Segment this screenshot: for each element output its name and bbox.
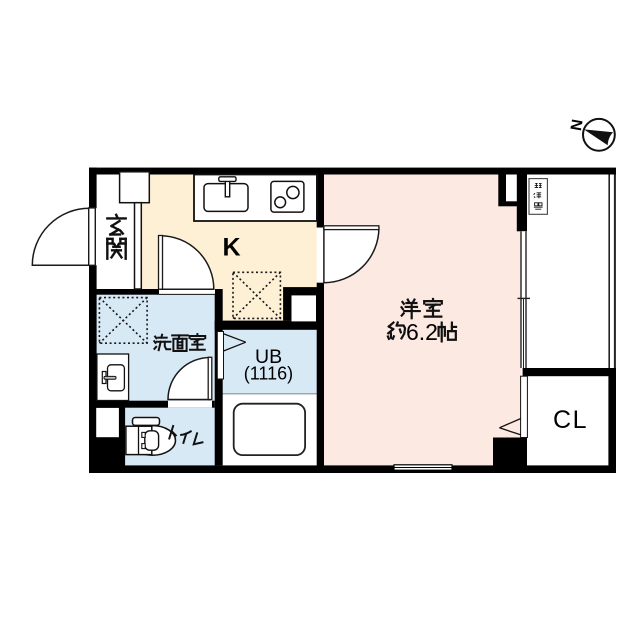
svg-text:(1116): (1116)	[244, 363, 293, 383]
svg-text:6.2: 6.2	[406, 319, 438, 345]
svg-text:CL: CL	[553, 406, 588, 434]
svg-text:K: K	[222, 234, 240, 262]
